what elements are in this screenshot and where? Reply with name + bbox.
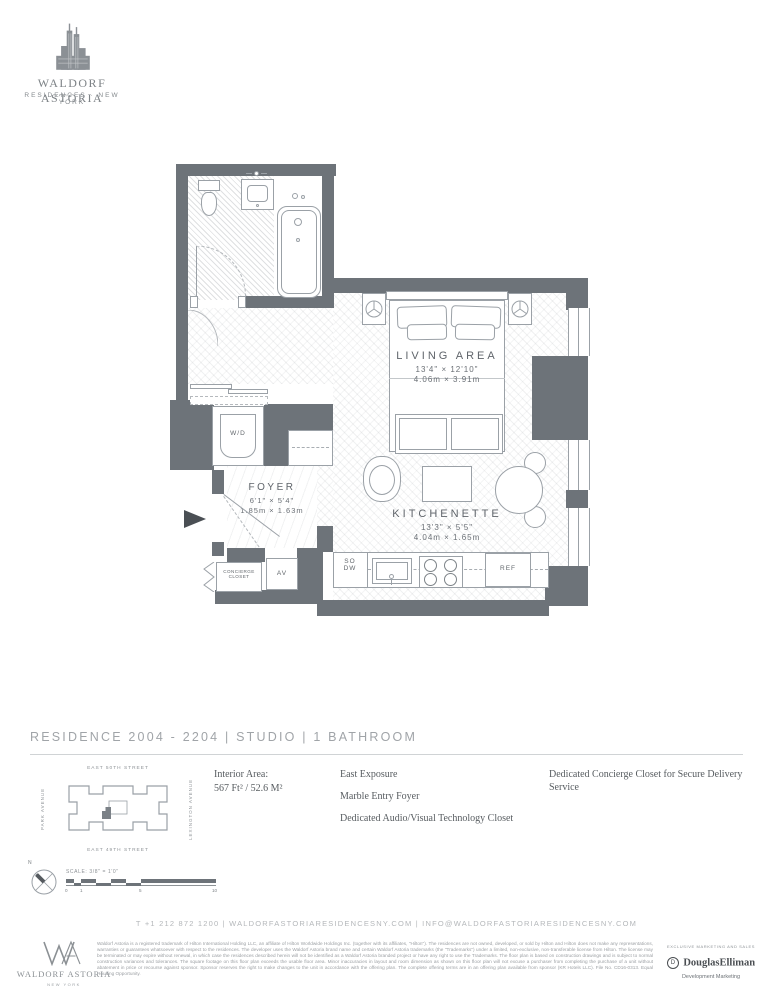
footer-wa-sub: NEW YORK	[16, 982, 112, 987]
living-area-label: LIVING AREA 13'4" × 12'10" 4.06m × 3.91m	[377, 350, 517, 384]
scale-tick: 10	[212, 888, 217, 893]
title-divider	[30, 754, 743, 755]
building-footprint	[59, 775, 177, 841]
window	[568, 508, 590, 566]
concierge-label-line2: CLOSET	[216, 574, 262, 579]
dw-label: DW	[333, 565, 367, 572]
armchair-seat	[369, 465, 395, 495]
wall	[212, 542, 224, 556]
burner-icon	[424, 573, 437, 586]
kitchenette-dim-metric: 4.04m × 1.65m	[373, 533, 521, 542]
kitchenette-name: KITCHENETTE	[373, 508, 521, 520]
living-area-name: LIVING AREA	[377, 350, 517, 362]
pillow	[407, 324, 447, 341]
sink-basin	[247, 185, 268, 202]
bathroom-door-arc	[196, 246, 246, 296]
residence-title: RESIDENCE 2004 - 2204 | STUDIO | 1 BATHR…	[30, 730, 417, 744]
wall	[264, 404, 288, 466]
douglas-elliman-block: EXCLUSIVE MARKETING AND SALES D DouglasE…	[658, 944, 764, 980]
de-name: DouglasElliman	[683, 957, 755, 968]
wall	[545, 566, 588, 606]
column	[532, 356, 588, 440]
wall	[566, 278, 588, 310]
wardrobe-rod	[292, 447, 329, 449]
scale-tick: 1	[80, 888, 83, 893]
window	[568, 308, 590, 356]
burner-icon	[424, 559, 437, 572]
stove	[419, 556, 463, 588]
scale-bar-group: SCALE: 3/8" = 1'0" 0 1 5 10	[66, 869, 226, 895]
feature-item: Marble Entry Foyer	[340, 790, 530, 803]
kitchen-faucet-stem	[391, 579, 392, 585]
features-left: East Exposure Marble Entry Foyer Dedicat…	[340, 768, 530, 834]
de-sub: Development Marketing	[658, 974, 764, 980]
bench-cushion	[399, 418, 447, 450]
de-circle-d-icon: D	[667, 957, 679, 969]
scale-label: SCALE: 3/8" = 1'0"	[66, 869, 119, 875]
wall	[317, 600, 549, 616]
burner-icon	[444, 573, 457, 586]
wall	[288, 404, 333, 430]
brochure-page: WALDORF ASTORIA RESIDENCES · NEW YORK	[0, 0, 773, 1000]
tub-fixture	[292, 193, 298, 199]
tub-drain	[296, 238, 300, 242]
dining-table	[495, 466, 543, 514]
features-right: Dedicated Concierge Closet for Secure De…	[549, 768, 754, 803]
bench-cushion	[451, 418, 499, 450]
faucet-knob	[254, 171, 259, 176]
de-header: EXCLUSIVE MARKETING AND SALES	[658, 944, 764, 949]
street-top-label: EAST 50TH STREET	[28, 766, 208, 771]
feature-item: Dedicated Audio/Visual Technology Closet	[340, 812, 530, 825]
faucet-mark	[246, 173, 252, 174]
wall	[227, 548, 265, 562]
scale-tick: 0	[65, 888, 68, 893]
interior-area-value: 567 Ft² / 52.6 M²	[214, 782, 334, 796]
wall	[176, 164, 188, 402]
toilet-tank	[198, 180, 220, 191]
waldorf-towers-icon	[52, 20, 94, 72]
pillow	[455, 324, 495, 341]
bifold-door	[202, 562, 216, 592]
entry-arrow-icon	[184, 510, 206, 528]
brand-logo: WALDORF ASTORIA RESIDENCES · NEW YORK	[12, 18, 132, 104]
closet-shelf	[190, 396, 268, 405]
avenue-left-label: PARK AVENUE	[40, 780, 45, 838]
refrigerator-label: REF	[485, 565, 531, 572]
street-bottom-label: EAST 49TH STREET	[28, 848, 208, 853]
living-area-dim-metric: 4.06m × 3.91m	[377, 375, 517, 384]
window-mullion	[566, 490, 588, 508]
contact-line: T +1 212 872 1200 | WALDORFASTORIARESIDE…	[0, 919, 773, 928]
burner-icon	[444, 559, 457, 572]
coffee-table	[422, 466, 472, 502]
lamp-icon	[510, 299, 530, 319]
key-plan: EAST 50TH STREET PARK AVENUE LEXINGTON A…	[28, 766, 208, 862]
feature-item: East Exposure	[340, 768, 530, 781]
wall	[215, 590, 323, 604]
floor-plan: W/D FOYER 6'1" × 5'4" 1.85m × 1.63m CONC…	[170, 160, 602, 622]
lamp-icon	[364, 299, 384, 319]
faucet-mark	[261, 173, 267, 174]
living-area-dim-imperial: 13'4" × 12'10"	[377, 365, 517, 374]
so-dw-label: SO DW	[333, 558, 367, 572]
window	[568, 440, 590, 490]
interior-area: Interior Area: 567 Ft² / 52.6 M²	[214, 768, 334, 796]
footer: WALDORF ASTORIA NEW YORK Waldorf Astoria…	[0, 938, 773, 1000]
feature-item: Dedicated Concierge Closet for Secure De…	[549, 768, 754, 794]
scale-tick: 5	[139, 888, 142, 893]
door-jamb	[190, 296, 198, 308]
brand-subtitle: RESIDENCES · NEW YORK	[12, 92, 132, 106]
foyer-label: FOYER 6'1" × 5'4" 1.85m × 1.63m	[222, 482, 322, 515]
av-closet-label: AV	[266, 570, 298, 577]
kitchenette-dim-imperial: 13'3" × 5'5"	[373, 523, 521, 532]
toilet-bowl	[201, 192, 217, 216]
interior-area-label: Interior Area:	[214, 768, 334, 782]
hall-closet-door-arc	[188, 310, 218, 346]
avenue-right-label: LEXINGTON AVENUE	[188, 776, 193, 842]
bed-headboard	[386, 291, 508, 300]
sliding-door	[190, 384, 232, 389]
compass-icon	[28, 866, 60, 898]
so-label: SO	[333, 558, 367, 565]
scale-bar	[66, 879, 216, 886]
legal-disclaimer: Waldorf Astoria is a registered trademar…	[97, 941, 653, 978]
tub-fixture	[301, 195, 305, 199]
concierge-closet-label: CONCIERGE CLOSET	[216, 569, 262, 579]
wa-monogram-icon	[42, 940, 82, 966]
sink-drain	[256, 204, 259, 207]
door-jamb	[238, 296, 246, 308]
washer-dryer-label: W/D	[212, 430, 264, 437]
sliding-door	[228, 389, 268, 394]
wall	[297, 548, 323, 594]
foyer-name: FOYER	[222, 482, 322, 493]
wall	[170, 400, 214, 470]
tub-faucet	[294, 218, 302, 226]
kitchenette-label: KITCHENETTE 13'3" × 5'5" 4.04m × 1.65m	[373, 508, 521, 542]
wall	[317, 526, 333, 552]
